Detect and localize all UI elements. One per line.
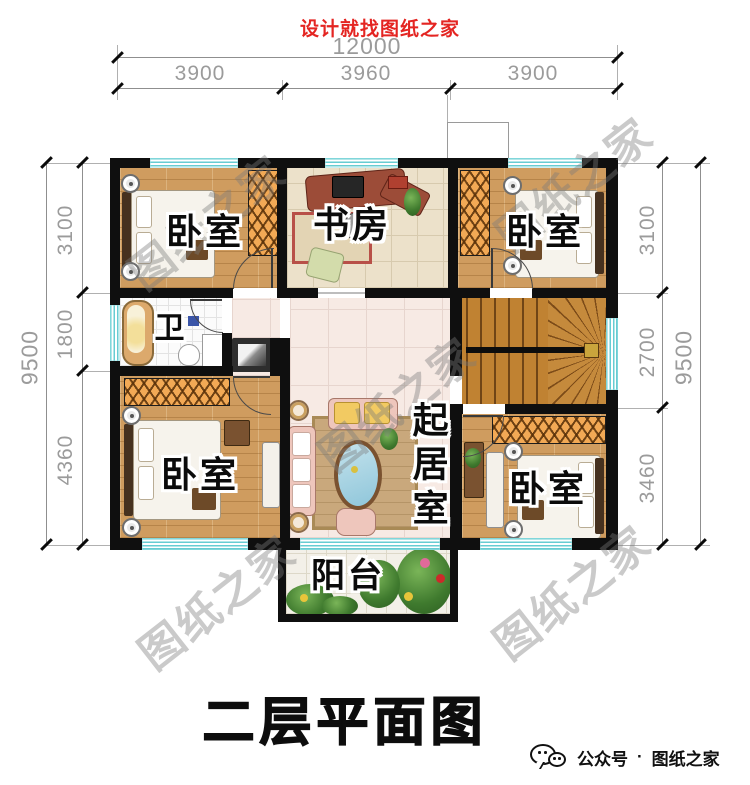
wall bbox=[270, 338, 290, 376]
window bbox=[150, 158, 238, 168]
drawing-title: 二层平面图 bbox=[95, 680, 595, 755]
header-slogan: 设计就找图纸之家 bbox=[290, 14, 470, 41]
window bbox=[508, 158, 582, 168]
dim-line-right-segs bbox=[662, 163, 663, 545]
wall bbox=[398, 158, 508, 168]
nightstand bbox=[224, 420, 250, 446]
balcony-wall bbox=[278, 550, 286, 622]
wall bbox=[110, 288, 233, 298]
dim-right-seg-3: 3460 bbox=[636, 438, 660, 518]
bedside-lamp bbox=[122, 518, 141, 537]
wall bbox=[532, 288, 618, 298]
footer-brand: 图纸之家 bbox=[652, 745, 720, 770]
extension-line bbox=[82, 293, 110, 294]
flower bbox=[420, 558, 430, 568]
dim-top-seg-3: 3900 bbox=[483, 62, 583, 86]
end-table bbox=[288, 512, 309, 533]
bedside-lamp bbox=[503, 176, 522, 195]
dim-left-seg-1: 3100 bbox=[54, 190, 78, 270]
wall bbox=[110, 158, 120, 305]
bedside-lamp bbox=[122, 406, 141, 425]
bedside-lamp bbox=[504, 442, 523, 461]
wall bbox=[280, 376, 290, 538]
dim-top-seg-2: 3960 bbox=[316, 62, 416, 86]
wardrobe bbox=[492, 416, 606, 444]
flower bbox=[436, 574, 445, 583]
dim-right-total: 9500 bbox=[671, 318, 698, 398]
wall bbox=[450, 404, 463, 414]
dim-line-left-segs bbox=[82, 163, 83, 545]
doorway-threshold bbox=[318, 292, 365, 294]
table-decor bbox=[351, 466, 358, 473]
stair-railing bbox=[466, 347, 588, 353]
bedside-lamp bbox=[121, 262, 140, 281]
wall bbox=[505, 404, 618, 414]
wall bbox=[572, 538, 618, 550]
dim-right-seg-2: 2700 bbox=[636, 312, 660, 392]
room-label-living: 起居室 bbox=[408, 392, 448, 542]
room-label-balcony: 阳台 bbox=[288, 558, 408, 595]
dim-line-right-total bbox=[700, 163, 701, 545]
wall bbox=[277, 168, 287, 288]
wall bbox=[450, 404, 462, 538]
extension-line bbox=[82, 371, 110, 372]
dim-top-seg-1: 3900 bbox=[150, 62, 250, 86]
dresser bbox=[262, 442, 280, 508]
armchair-cushion bbox=[364, 402, 390, 424]
wall bbox=[277, 288, 318, 298]
bedside-lamp bbox=[504, 520, 523, 539]
ottoman bbox=[336, 508, 376, 536]
wall bbox=[448, 168, 458, 288]
footer-separator: · bbox=[637, 747, 643, 767]
armchair-cushion bbox=[334, 402, 360, 424]
desk-books bbox=[388, 176, 408, 189]
window bbox=[480, 538, 572, 550]
bedside-lamp bbox=[121, 174, 140, 193]
dim-left-total: 9500 bbox=[17, 318, 44, 398]
dim-line-left-total bbox=[46, 163, 47, 545]
wall bbox=[110, 361, 120, 550]
tv-screen bbox=[238, 344, 266, 366]
window bbox=[142, 538, 248, 550]
dim-line-top-segs bbox=[117, 88, 617, 89]
room-label-bedroom-br: 卧室 bbox=[488, 469, 608, 509]
footer-label: 公众号 bbox=[577, 745, 628, 770]
dim-left-seg-2: 1800 bbox=[54, 294, 78, 374]
balcony-wall bbox=[450, 550, 458, 622]
room-label-study: 书房 bbox=[292, 205, 412, 245]
rug-plant-decor bbox=[380, 428, 398, 450]
room-label-bedroom-tl: 卧室 bbox=[145, 212, 265, 252]
floor-plan-page: 设计就找图纸之家 12000 3900 3960 3900 9500 3100 … bbox=[0, 0, 750, 785]
toilet bbox=[178, 344, 200, 366]
wall bbox=[110, 538, 142, 550]
wall bbox=[238, 158, 325, 168]
stair-newel-post bbox=[584, 343, 599, 358]
balcony-plants bbox=[322, 596, 358, 616]
wall bbox=[110, 366, 233, 376]
sofa-cushion bbox=[292, 432, 311, 456]
sofa-cushion bbox=[292, 458, 311, 482]
window bbox=[325, 158, 398, 168]
coffee-table bbox=[334, 440, 382, 510]
room-label-bedroom-tr: 卧室 bbox=[485, 212, 605, 252]
end-table bbox=[288, 400, 309, 421]
sink-counter bbox=[202, 334, 224, 368]
computer-monitor bbox=[332, 176, 364, 198]
bed-headboard bbox=[124, 424, 133, 516]
dim-left-seg-3: 4360 bbox=[54, 420, 78, 500]
balcony-wall bbox=[278, 614, 458, 622]
footer-brand-row: 公众号 · 图纸之家 bbox=[530, 742, 720, 772]
extension-line bbox=[447, 95, 448, 122]
wall bbox=[248, 538, 300, 550]
dim-right-seg-1: 3100 bbox=[636, 190, 660, 270]
bathtub-basin bbox=[127, 305, 145, 353]
room-label-bath: 卫 bbox=[148, 312, 194, 345]
sofa-cushion bbox=[292, 484, 311, 508]
window bbox=[110, 305, 120, 361]
wardrobe bbox=[124, 378, 230, 406]
wall bbox=[365, 288, 490, 298]
room-label-bedroom-bl: 卧室 bbox=[140, 455, 260, 495]
window bbox=[606, 318, 618, 390]
flue-outline bbox=[447, 122, 509, 160]
wechat-icon bbox=[530, 742, 568, 772]
wall bbox=[450, 298, 462, 376]
